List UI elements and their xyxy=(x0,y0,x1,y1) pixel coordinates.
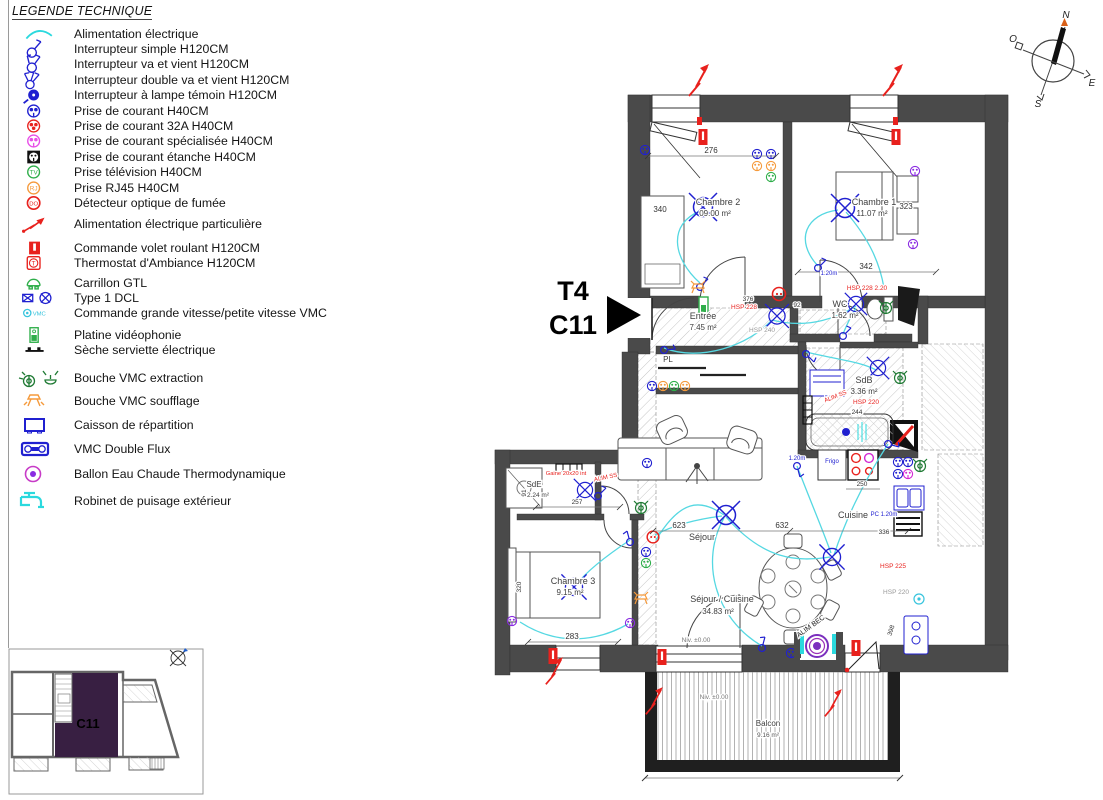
room-label-chambre3: Chambre 3 xyxy=(551,576,596,586)
level-label-balcon: Niv. ±0.00 xyxy=(700,694,729,701)
unit-code: C11 xyxy=(549,310,597,340)
vmc-command xyxy=(914,594,924,604)
room-label-sde: SdE xyxy=(526,480,541,489)
svg-text:398: 398 xyxy=(887,624,897,637)
inset-unit-label: C11 xyxy=(76,716,99,731)
svg-text:376: 376 xyxy=(743,296,754,303)
svg-text:Gaine 20x20 int: Gaine 20x20 int xyxy=(546,471,587,477)
svg-text:250: 250 xyxy=(857,481,868,488)
room-label-sdb: SdB xyxy=(855,375,872,385)
svg-text:342: 342 xyxy=(859,262,873,271)
room-area-chambre3: 9.15 m² xyxy=(556,588,583,597)
svg-text:91: 91 xyxy=(521,489,528,497)
compass-rose: N O E S xyxy=(1009,10,1096,110)
floor-plan-drawing: Chambre 2 09.00 m² Chambre 1 11.07 m² WC… xyxy=(0,0,1103,800)
room-area-chambre1: 11.07 m² xyxy=(857,209,888,218)
room-label-chambre2: Chambre 2 xyxy=(696,197,741,207)
svg-text:HSP 240: HSP 240 xyxy=(749,327,775,334)
room-area-entree: 7.45 m² xyxy=(689,323,716,332)
key-plan-inset: C11 xyxy=(9,648,203,794)
svg-text:336: 336 xyxy=(879,529,890,536)
svg-text:HSP 225: HSP 225 xyxy=(880,563,906,570)
svg-text:257: 257 xyxy=(572,499,583,506)
utility-appliance xyxy=(904,616,928,654)
svg-text:1.20m: 1.20m xyxy=(789,456,806,462)
room-label-chambre1: Chambre 1 xyxy=(852,197,897,207)
svg-text:HSP 220: HSP 220 xyxy=(883,589,909,596)
compass-e: E xyxy=(1089,78,1096,89)
svg-text:Frigo: Frigo xyxy=(825,459,839,465)
dining-table xyxy=(744,534,843,644)
room-label-balcon: Balcon xyxy=(756,719,780,728)
room-area-sde: 2.24 m² xyxy=(527,492,550,499)
hsp-note-entree: HSP 228 xyxy=(731,304,757,311)
room-label-pl: PL xyxy=(663,355,673,364)
svg-text:244: 244 xyxy=(852,409,863,416)
compass-o: O xyxy=(1009,34,1017,45)
hsp-note-wc: HSP 228 2.20 xyxy=(847,285,888,292)
compass-n: N xyxy=(1062,10,1070,21)
room-area-chambre2: 09.00 m² xyxy=(699,209,731,218)
cooktop xyxy=(848,450,878,480)
bathtub xyxy=(806,414,893,450)
hsp-note-sdb: HSP 220 xyxy=(853,399,879,406)
room-area-sdb: 3.36 m² xyxy=(850,387,877,396)
compass-s: S xyxy=(1035,99,1042,110)
svg-text:623: 623 xyxy=(672,521,686,530)
svg-text:632: 632 xyxy=(775,521,789,530)
technical-plan-page: LEGENDE TECHNIQUE Alimentation électriqu… xyxy=(0,0,1103,800)
svg-text:320: 320 xyxy=(516,581,523,592)
fridge xyxy=(818,450,846,480)
room-area-wc: 1.62 m² xyxy=(831,311,858,320)
room-label-cuisine: Cuisine xyxy=(838,510,868,520)
room-label-sejour-cuisine: Séjour / Cuisine xyxy=(690,594,754,604)
svg-text:323: 323 xyxy=(899,202,913,211)
room-area-sejour-cuisine: 34.83 m² xyxy=(702,607,734,616)
oven xyxy=(894,512,922,536)
svg-text:276: 276 xyxy=(704,146,718,155)
room-label-wc: WC xyxy=(833,299,848,309)
unit-type: T4 xyxy=(557,276,589,306)
svg-text:PC 1.20m: PC 1.20m xyxy=(871,512,898,518)
room-label-entree: Entrée xyxy=(690,311,717,321)
svg-text:340: 340 xyxy=(653,205,667,214)
svg-text:92: 92 xyxy=(793,302,801,309)
room-label-sejour: Séjour xyxy=(689,532,715,542)
level-label-sejour: Niv. ±0.00 xyxy=(682,637,711,644)
svg-text:283: 283 xyxy=(565,632,579,641)
room-area-balcon: 9.16 m² xyxy=(757,732,780,739)
sink xyxy=(894,486,924,510)
svg-text:1.20m: 1.20m xyxy=(821,271,838,277)
